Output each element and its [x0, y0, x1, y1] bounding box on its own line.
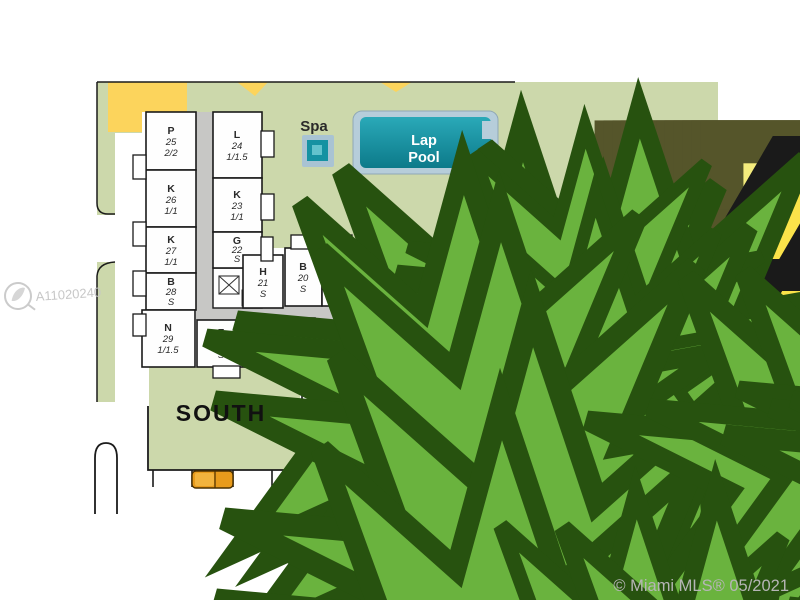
svg-text:H: H	[259, 266, 267, 278]
balcony	[133, 222, 146, 246]
pool-label-line1: Lap	[411, 133, 437, 149]
unit-l24: L241/1.5	[213, 112, 262, 178]
unit-n29: N291/1.5	[142, 310, 195, 367]
elevator-west	[219, 276, 239, 294]
svg-text:1/1.5: 1/1.5	[226, 152, 248, 163]
svg-text:27: 27	[165, 246, 177, 257]
spa-center	[312, 145, 322, 155]
svg-text:26: 26	[165, 195, 177, 206]
unit-h21: H21S	[243, 255, 283, 308]
svg-text:B: B	[299, 261, 307, 273]
driveway-gap	[93, 215, 117, 262]
svg-text:K: K	[167, 183, 175, 195]
svg-text:S: S	[300, 284, 307, 295]
svg-text:2/2: 2/2	[163, 148, 178, 159]
balcony	[213, 366, 240, 378]
unit-k23: K231/1	[213, 178, 262, 232]
corridor-west	[196, 112, 213, 306]
balcony	[261, 194, 274, 220]
mls-watermark: A11020240	[3, 281, 101, 314]
svg-text:K: K	[233, 189, 241, 201]
mls-logo-icon	[3, 281, 35, 314]
svg-text:S: S	[168, 297, 175, 308]
svg-text:1/1: 1/1	[230, 212, 243, 223]
svg-text:1/1.5: 1/1.5	[157, 345, 179, 356]
svg-text:S: S	[234, 254, 241, 265]
site-plan-image: P252/2 K261/1 K271/1 B28S L241/1.5 K231/…	[0, 0, 800, 600]
svg-text:1/1: 1/1	[164, 206, 177, 217]
balcony	[133, 155, 146, 179]
balcony	[133, 314, 146, 336]
listing-id-watermark: A11020240	[35, 284, 101, 304]
balcony	[133, 271, 146, 296]
svg-text:29: 29	[162, 334, 174, 345]
svg-text:K: K	[167, 234, 175, 246]
site-plan-svg: P252/2 K261/1 K271/1 B28S L241/1.5 K231/…	[0, 0, 800, 600]
svg-text:20: 20	[297, 273, 309, 284]
svg-text:L: L	[234, 129, 241, 141]
pool-label-line2: Pool	[408, 150, 439, 166]
svg-text:1/1: 1/1	[164, 257, 177, 268]
unit-b28: B28S	[146, 273, 196, 310]
svg-text:P: P	[167, 125, 174, 137]
curb-island-left	[95, 443, 117, 514]
unit-k26: K261/1	[146, 170, 196, 227]
mls-credit-watermark: © Miami MLS® 05/2021	[613, 577, 789, 595]
unit-p25: P252/2	[146, 112, 196, 170]
svg-text:23: 23	[231, 201, 243, 212]
pool-step	[482, 121, 495, 139]
road-west	[115, 133, 142, 470]
spa-label: Spa	[300, 118, 328, 135]
south-label: SOUTH	[176, 400, 267, 426]
unit-k27: K271/1	[146, 227, 196, 273]
svg-text:21: 21	[257, 278, 269, 289]
svg-text:S: S	[260, 289, 267, 300]
svg-text:25: 25	[165, 137, 177, 148]
parked-car-orange-icon	[192, 471, 233, 488]
balcony	[261, 237, 273, 261]
balcony	[261, 131, 274, 157]
svg-text:N: N	[164, 322, 172, 334]
svg-text:24: 24	[231, 141, 243, 152]
